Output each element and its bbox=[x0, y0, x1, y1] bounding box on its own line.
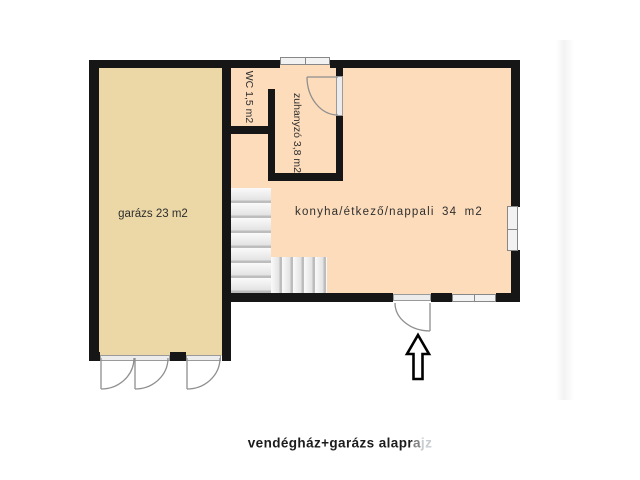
wall-shower-right-lower bbox=[336, 116, 343, 180]
window-right bbox=[507, 206, 518, 251]
wc-room-label: WC 1,5 m2 bbox=[243, 71, 255, 124]
wall-shower-bottom bbox=[268, 173, 343, 181]
window-top bbox=[280, 57, 330, 65]
plan-caption-main: vendégház+garázs alapr bbox=[248, 436, 413, 451]
window-mullion bbox=[508, 229, 517, 230]
window-mullion bbox=[305, 58, 306, 64]
plan-caption-fade1: a bbox=[413, 436, 421, 451]
garage-double-door-threshold bbox=[100, 355, 170, 361]
wall-wc-shower-divider bbox=[268, 89, 275, 180]
garage-room-label: garázs 23 m2 bbox=[118, 208, 188, 220]
garage-single-door-threshold bbox=[186, 355, 221, 361]
wall-right-upper bbox=[511, 60, 520, 207]
wall-top-left bbox=[89, 60, 280, 68]
window-bottom bbox=[452, 294, 496, 302]
garage-single-door-swing bbox=[187, 358, 220, 389]
living-room-label: konyha/étkező/nappali 34 m2 bbox=[295, 206, 483, 218]
stairs-lower-flight bbox=[271, 257, 327, 293]
wall-bottom-main-right bbox=[496, 293, 520, 302]
stairs-vertical-flight bbox=[231, 188, 271, 293]
wall-bottom-main-left bbox=[231, 293, 393, 302]
wall-garage-bottom-left bbox=[89, 352, 100, 361]
wall-bottom-main-mid bbox=[431, 293, 452, 302]
front-door-swing bbox=[395, 303, 430, 331]
wall-wc-bottom bbox=[222, 126, 272, 134]
shower-room-label: zuhanyzó 3,8 m2 bbox=[291, 93, 303, 173]
front-door-threshold bbox=[393, 294, 431, 301]
plan-caption-fade2: jz bbox=[421, 436, 432, 451]
garage-double-door-swing bbox=[101, 358, 168, 389]
plan-caption: vendégház+garázs alaprajz bbox=[248, 436, 432, 451]
shower-door-jamb bbox=[336, 76, 343, 116]
wall-left bbox=[89, 60, 99, 361]
entrance-arrow-icon bbox=[407, 335, 429, 379]
scan-artifact bbox=[556, 40, 574, 400]
wall-shower-right-stub bbox=[336, 64, 343, 76]
window-mullion bbox=[474, 295, 475, 301]
wall-top-right bbox=[330, 60, 520, 68]
floor-plan: garázs 23 m2 WC 1,5 m2 zuhanyzó 3,8 m2 k… bbox=[0, 0, 640, 480]
wall-garage-right bbox=[222, 60, 231, 361]
wall-garage-bottom-mid bbox=[170, 352, 186, 361]
